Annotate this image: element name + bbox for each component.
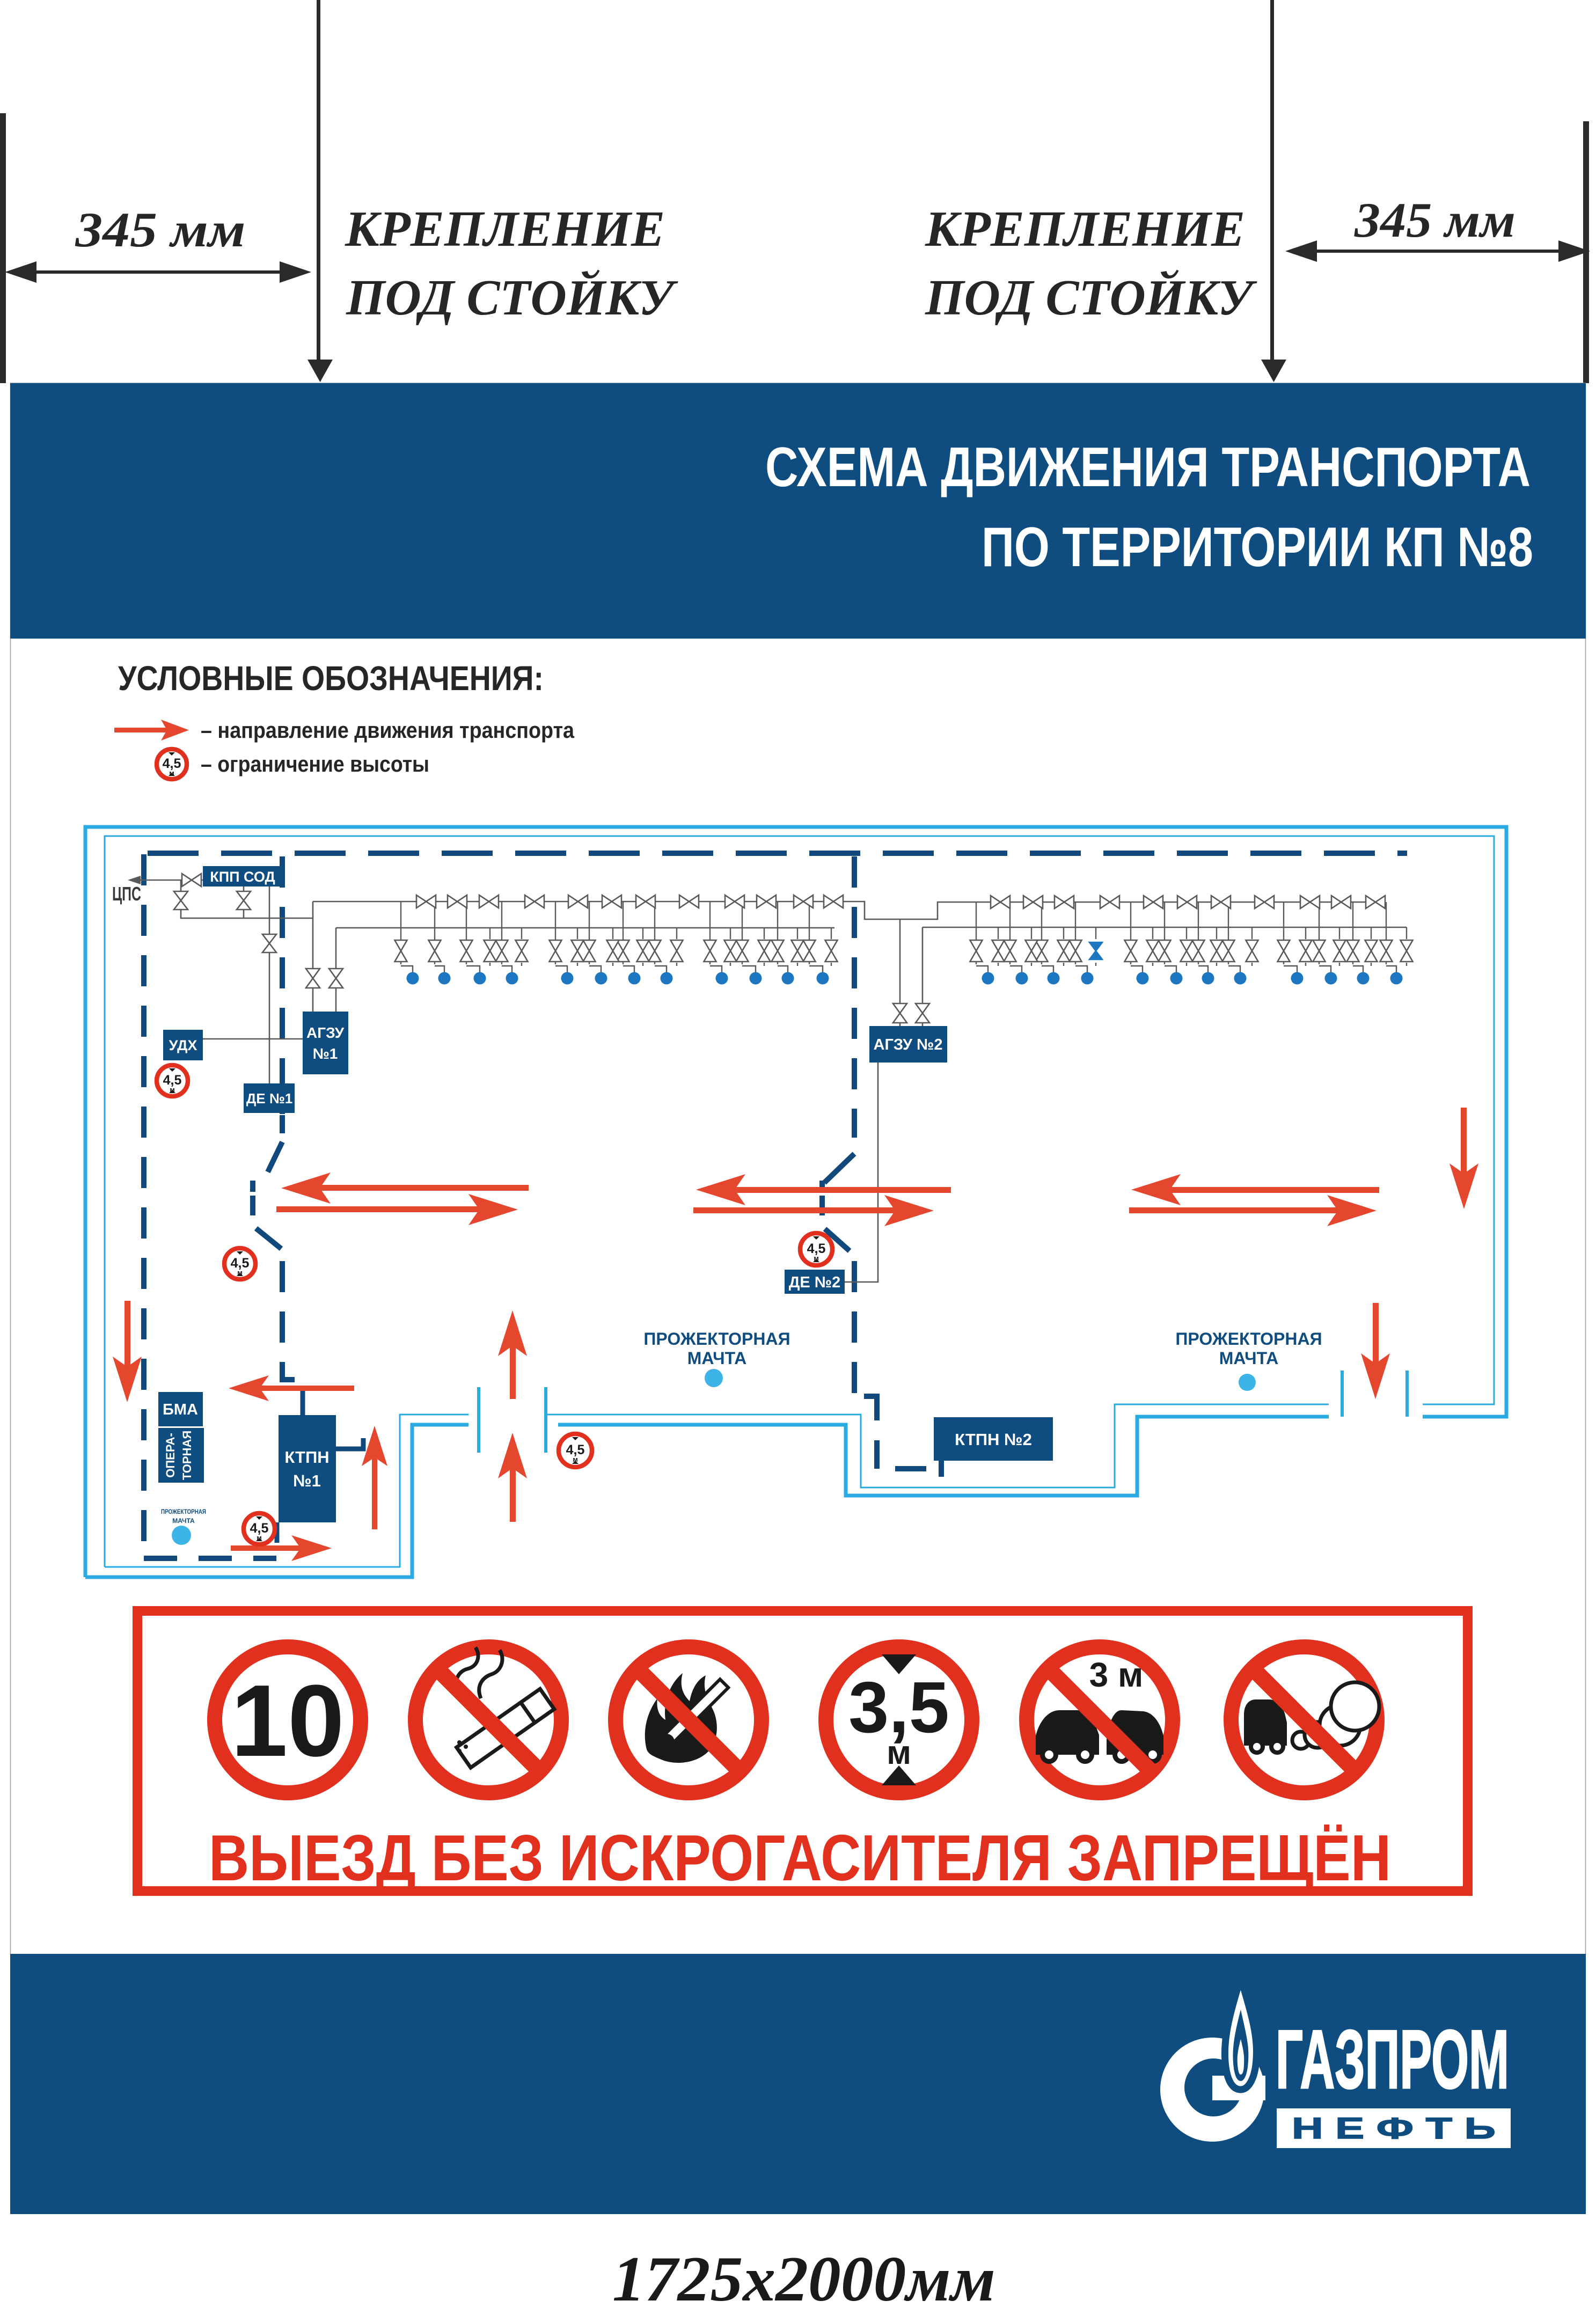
svg-text:КРЕПЛЕНИЕ: КРЕПЛЕНИЕ — [345, 201, 665, 257]
svg-text:ОПЕРА-: ОПЕРА- — [164, 1433, 177, 1478]
svg-text:СХЕМА ДВИЖЕНИЯ ТРАНСПОРТА: СХЕМА ДВИЖЕНИЯ ТРАНСПОРТА — [765, 436, 1531, 499]
svg-text:УСЛОВНЫЕ ОБОЗНАЧЕНИЯ:: УСЛОВНЫЕ ОБОЗНАЧЕНИЯ: — [118, 659, 544, 698]
svg-text:10: 10 — [231, 1664, 344, 1778]
svg-text:№1: №1 — [313, 1045, 338, 1062]
svg-text:МАЧТА: МАЧТА — [687, 1349, 746, 1368]
svg-text:м: м — [573, 1455, 578, 1463]
svg-text:345 мм: 345 мм — [75, 202, 245, 257]
svg-text:ДЕ №1: ДЕ №1 — [246, 1090, 293, 1107]
svg-text:ЦПС: ЦПС — [112, 883, 141, 905]
svg-text:КТПН: КТПН — [284, 1448, 329, 1467]
svg-text:ДЕ №2: ДЕ №2 — [789, 1274, 841, 1291]
svg-text:ПО ТЕРРИТОРИИ КП №8: ПО ТЕРРИТОРИИ КП №8 — [982, 516, 1533, 578]
svg-text:МАЧТА: МАЧТА — [172, 1517, 195, 1525]
svg-text:м: м — [169, 769, 174, 777]
svg-text:ПРОЖЕКТОРНАЯ: ПРОЖЕКТОРНАЯ — [1175, 1329, 1322, 1349]
svg-text:Н Е Ф Т Ь: Н Е Ф Т Ь — [1292, 2111, 1496, 2145]
svg-text:МАЧТА: МАЧТА — [1219, 1349, 1278, 1368]
svg-text:КРЕПЛЕНИЕ: КРЕПЛЕНИЕ — [925, 201, 1245, 257]
svg-text:ПРОЖЕКТОРНАЯ: ПРОЖЕКТОРНАЯ — [643, 1329, 790, 1349]
svg-text:345 мм: 345 мм — [1354, 193, 1516, 247]
svg-text:– ограничение высоты: – ограничение высоты — [201, 751, 429, 776]
svg-text:ГАЗПРОМ: ГАЗПРОМ — [1276, 2013, 1509, 2106]
svg-text:м: м — [170, 1086, 175, 1094]
svg-text:УДХ: УДХ — [169, 1037, 197, 1053]
svg-text:БМА: БМА — [163, 1401, 198, 1418]
svg-text:№1: №1 — [293, 1471, 321, 1490]
svg-text:м: м — [887, 1734, 911, 1771]
svg-text:1725х2000мм: 1725х2000мм — [612, 2243, 995, 2308]
svg-text:м: м — [814, 1254, 819, 1262]
svg-text:ПОД СТОЙКУ: ПОД СТОЙКУ — [346, 270, 679, 326]
svg-text:м: м — [257, 1534, 262, 1542]
svg-text:ВЫЕЗД БЕЗ ИСКРОГАСИТЕЛЯ ЗАПРЕЩ: ВЫЕЗД БЕЗ ИСКРОГАСИТЕЛЯ ЗАПРЕЩЁН — [209, 1821, 1391, 1894]
svg-text:ПОД СТОЙКУ: ПОД СТОЙКУ — [925, 270, 1258, 326]
svg-text:КТПН №2: КТПН №2 — [955, 1430, 1032, 1449]
svg-text:АГЗУ №2: АГЗУ №2 — [874, 1036, 943, 1053]
svg-text:ТОРНАЯ: ТОРНАЯ — [180, 1431, 194, 1480]
svg-text:ПРОЖЕКТОРНАЯ: ПРОЖЕКТОРНАЯ — [161, 1508, 206, 1515]
svg-text:КПП СОД: КПП СОД — [210, 869, 275, 885]
svg-text:– направление движения транспо: – направление движения транспорта — [201, 717, 575, 743]
svg-text:3 м: 3 м — [1089, 1655, 1144, 1694]
svg-text:АГЗУ: АГЗУ — [306, 1024, 345, 1041]
svg-text:м: м — [237, 1269, 243, 1277]
